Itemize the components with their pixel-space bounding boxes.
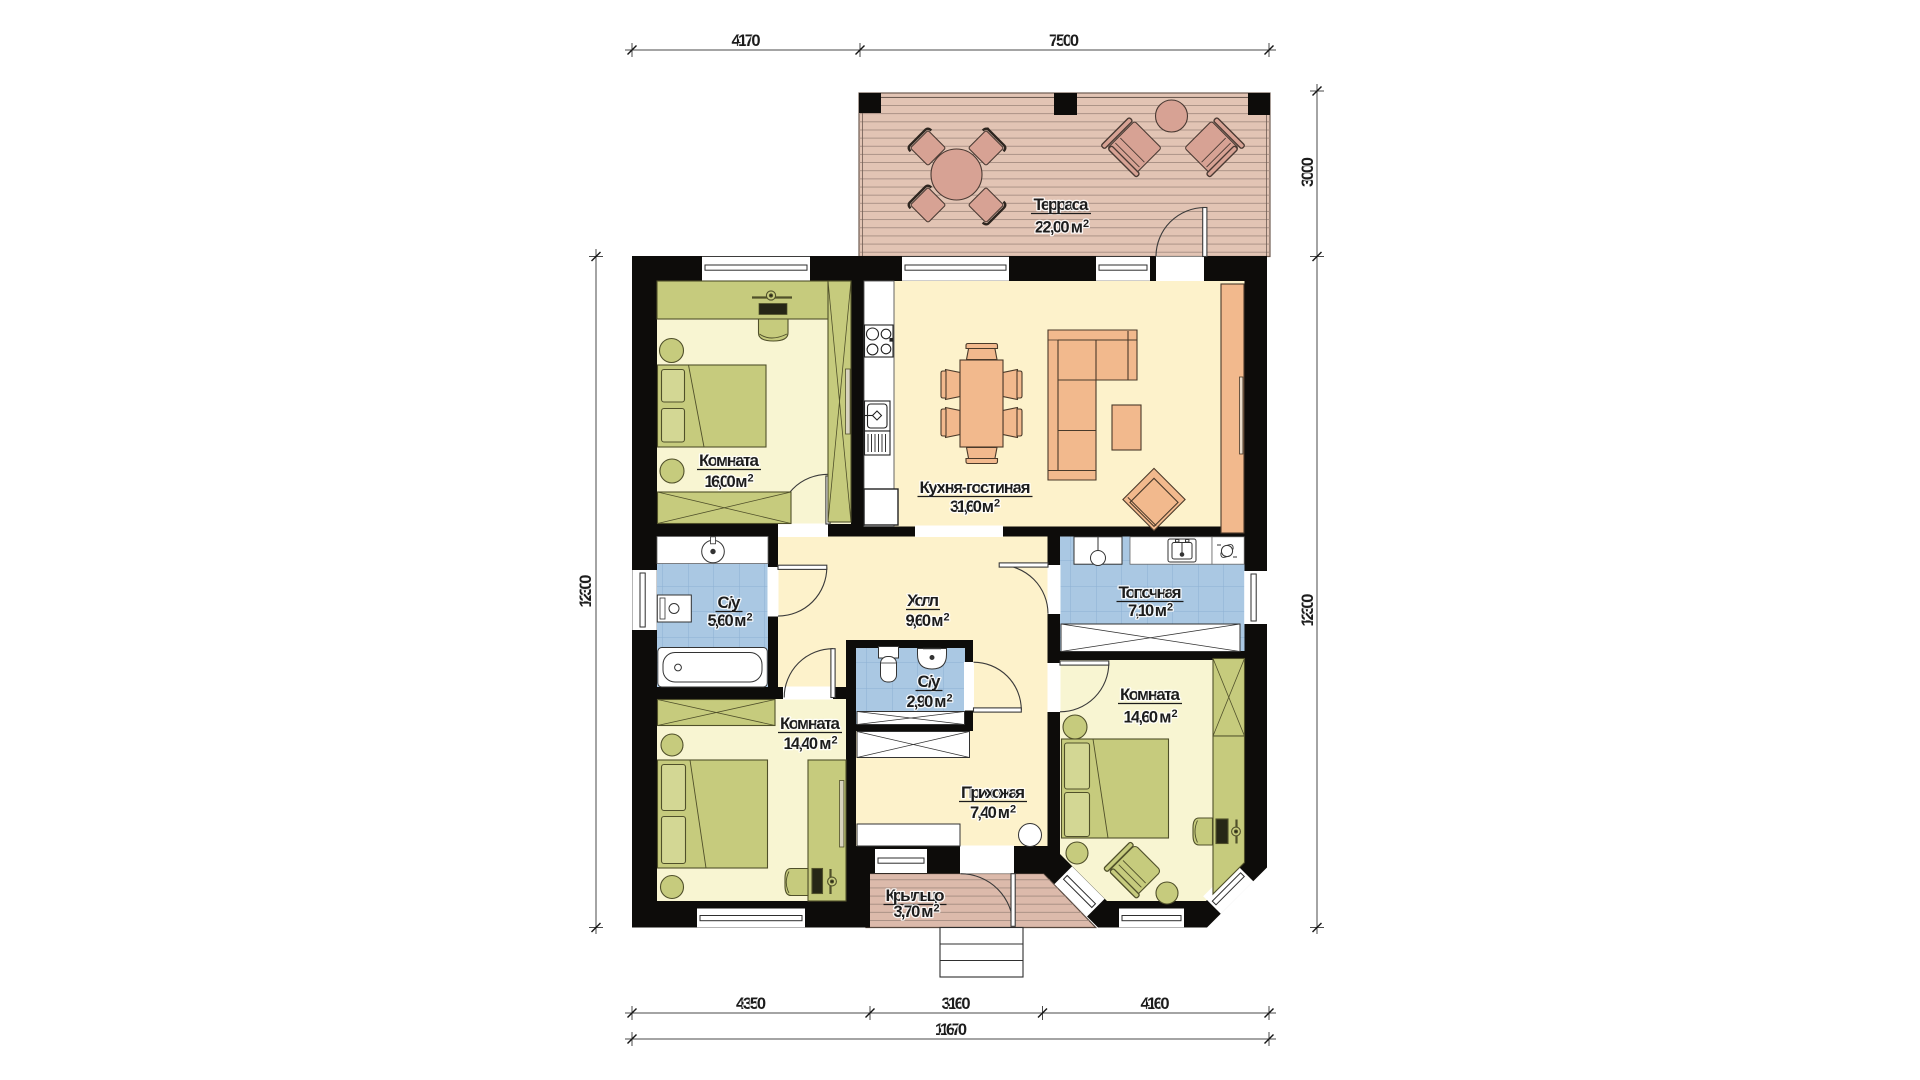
svg-text:3000: 3000 [1299,157,1317,187]
svg-text:Терраса: Терраса [1034,195,1090,214]
svg-text:3,70 м: 3,70 м [894,903,934,921]
svg-text:2: 2 [1167,602,1173,614]
svg-text:3160: 3160 [942,995,971,1013]
svg-text:2: 2 [1083,218,1089,230]
svg-text:2: 2 [943,612,949,624]
svg-text:Прихожая: Прихожая [961,783,1025,802]
svg-text:2: 2 [1171,708,1177,720]
svg-text:5,60 м: 5,60 м [708,612,747,630]
svg-text:2: 2 [747,473,753,485]
svg-text:2: 2 [933,903,939,915]
svg-text:2,90 м: 2,90 м [907,693,947,711]
svg-text:7,40 м: 7,40 м [970,804,1010,822]
svg-text:2: 2 [831,735,837,747]
svg-text:2: 2 [746,612,752,624]
svg-text:4350: 4350 [736,995,766,1013]
svg-text:12300: 12300 [577,575,595,608]
svg-text:14,60 м: 14,60 м [1124,709,1172,727]
svg-text:4170: 4170 [732,32,761,50]
svg-text:7,10 м: 7,10 м [1128,602,1167,620]
svg-text:22,00 м: 22,00 м [1035,219,1083,237]
svg-text:16,00 м: 16,00 м [705,473,748,491]
svg-text:Комната: Комната [1120,685,1181,704]
svg-text:14,40 м: 14,40 м [784,735,832,753]
svg-text:С/у: С/у [718,593,742,612]
svg-text:2: 2 [1010,804,1016,816]
svg-text:9,60 м: 9,60 м [906,612,944,630]
svg-text:7500: 7500 [1049,32,1079,50]
svg-text:Кухня-гостиная: Кухня-гостиная [920,478,1031,497]
svg-text:Топочная: Топочная [1119,583,1182,602]
svg-text:Комната: Комната [780,714,841,733]
svg-text:2: 2 [946,693,952,705]
svg-text:4160: 4160 [1141,995,1170,1013]
svg-text:11670: 11670 [935,1021,967,1039]
svg-text:Комната: Комната [699,451,760,470]
svg-text:С/у: С/у [918,672,942,691]
svg-text:12300: 12300 [1299,594,1317,627]
svg-text:31,60 м: 31,60 м [950,498,994,516]
svg-text:2: 2 [994,498,1000,510]
svg-text:Холл: Холл [907,591,939,610]
